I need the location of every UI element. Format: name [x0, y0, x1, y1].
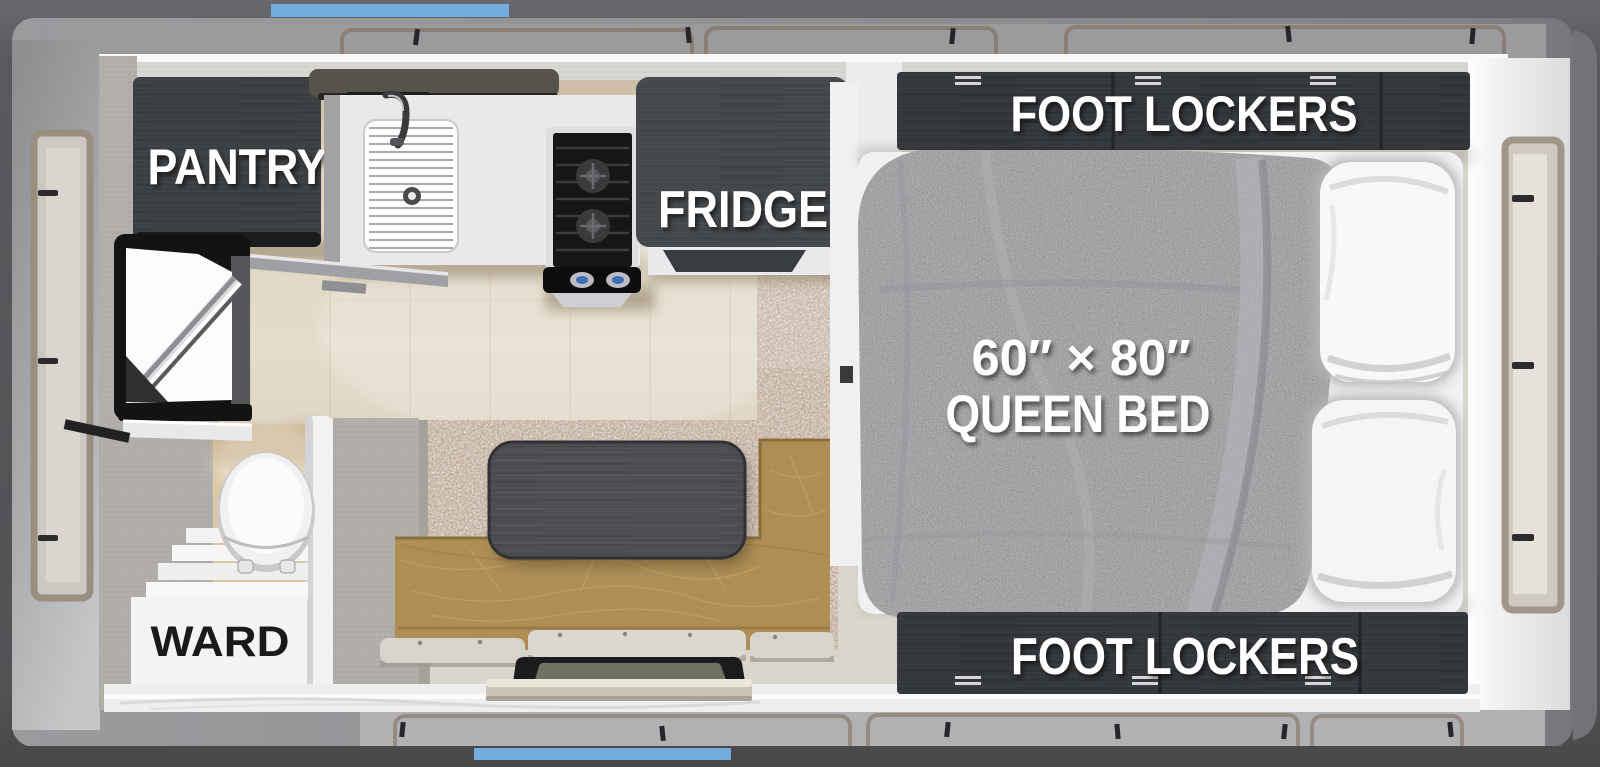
svg-text:QUEEN BED: QUEEN BED — [946, 385, 1211, 444]
svg-text:FOOT LOCKERS: FOOT LOCKERS — [1011, 86, 1358, 142]
svg-text:PANTRY: PANTRY — [148, 139, 327, 195]
svg-text:60″ × 80″: 60″ × 80″ — [972, 329, 1191, 386]
svg-text:FRIDGE: FRIDGE — [658, 181, 828, 239]
svg-text:FOOT LOCKERS: FOOT LOCKERS — [1011, 628, 1359, 686]
svg-text:WARD: WARD — [151, 618, 290, 666]
